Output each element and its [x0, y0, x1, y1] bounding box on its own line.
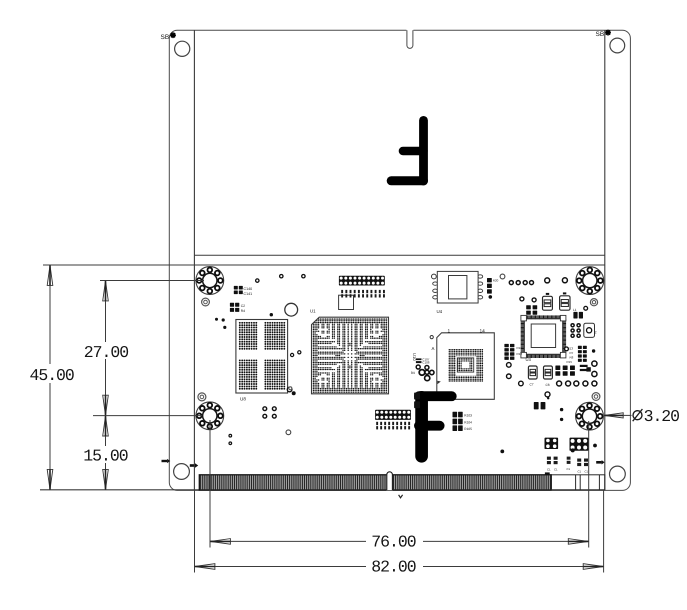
svg-text:SB: SB — [161, 34, 170, 41]
svg-text:3.20: 3.20 — [644, 407, 680, 426]
svg-text:C1: C1 — [585, 469, 589, 473]
svg-text:C7: C7 — [530, 383, 534, 387]
svg-text:U10: U10 — [412, 353, 417, 361]
svg-text:A: A — [432, 346, 435, 351]
svg-text:C141: C141 — [244, 292, 253, 296]
svg-text:R15: R15 — [567, 360, 573, 364]
svg-text:U3: U3 — [526, 357, 532, 362]
svg-text:C108: C108 — [422, 361, 430, 365]
svg-text:U8: U8 — [240, 397, 246, 402]
svg-text:R104: R104 — [464, 420, 472, 424]
svg-text:R12: R12 — [517, 352, 523, 356]
svg-text:R20: R20 — [493, 279, 499, 283]
svg-text:C1: C1 — [578, 469, 582, 473]
svg-text:76.00: 76.00 — [371, 533, 415, 552]
svg-text:U4: U4 — [437, 309, 443, 314]
svg-text:R7: R7 — [570, 351, 574, 355]
svg-text:R103: R103 — [464, 414, 472, 418]
svg-text:R11: R11 — [517, 346, 523, 350]
svg-text:U1: U1 — [310, 308, 316, 313]
svg-text:C2: C2 — [241, 304, 245, 308]
svg-text:1: 1 — [448, 329, 451, 335]
svg-text:L1: L1 — [573, 308, 577, 312]
svg-text:2: 2 — [595, 330, 597, 334]
svg-text:R105: R105 — [464, 427, 472, 431]
svg-text:82.00: 82.00 — [371, 558, 415, 577]
svg-text:14: 14 — [480, 329, 486, 335]
svg-text:C8: C8 — [546, 383, 550, 387]
svg-text:R8: R8 — [570, 356, 574, 360]
svg-text:45.00: 45.00 — [30, 366, 74, 385]
svg-text:27.00: 27.00 — [84, 343, 128, 362]
svg-text:C1: C1 — [554, 468, 558, 472]
svg-text:15.00: 15.00 — [83, 447, 127, 466]
svg-text:C1: C1 — [547, 468, 551, 472]
svg-text:R9: R9 — [411, 371, 415, 375]
svg-text:C1: C1 — [567, 467, 571, 471]
svg-text:R4: R4 — [241, 309, 245, 313]
svg-text:SB: SB — [596, 31, 605, 38]
svg-text:C140: C140 — [244, 287, 253, 291]
